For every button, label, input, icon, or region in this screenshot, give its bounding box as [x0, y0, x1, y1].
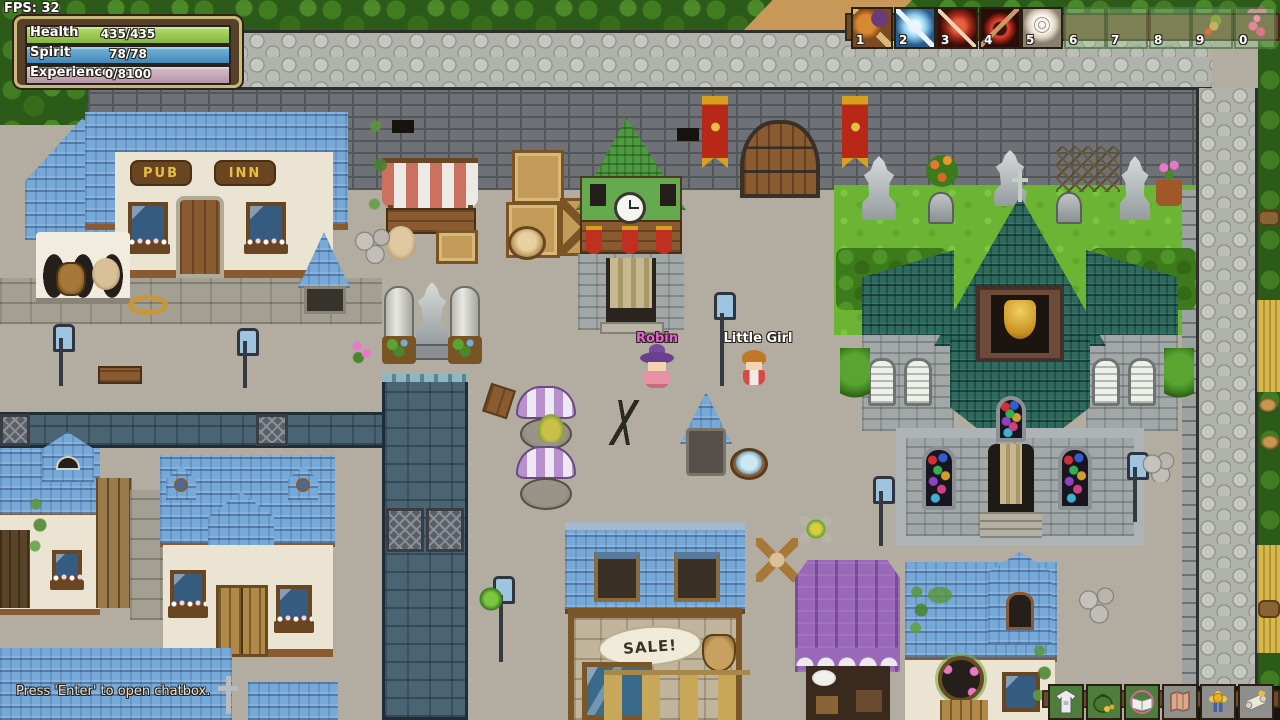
- little-girl-dress: [743, 370, 765, 385]
- quests-button[interactable]: [1238, 684, 1274, 720]
- wheat-field-2: [1257, 545, 1280, 653]
- tombstone-1: [928, 192, 954, 224]
- tombstone-2: [1056, 192, 1082, 224]
- quests-icon: [1243, 689, 1269, 715]
- shed-banner-1: [586, 226, 602, 256]
- rope-coil: [128, 295, 168, 315]
- hotbar-key-3: 3: [941, 33, 949, 47]
- wall-vent-2: [677, 128, 699, 141]
- church-window-r1: [1092, 358, 1120, 406]
- vine-trellis: [1056, 146, 1120, 192]
- hotbar-key-1: 1: [856, 33, 864, 47]
- map-icon: [1167, 689, 1193, 715]
- lamppost-4: [874, 476, 888, 546]
- church-window-r2: [1128, 358, 1156, 406]
- hotbar-slot-3[interactable]: 3: [936, 7, 978, 49]
- pub-flowerbox-right: [244, 244, 288, 254]
- wall-banner-right: [842, 96, 868, 168]
- hotbar-slot-7[interactable]: 7: [1106, 7, 1148, 49]
- player-robin[interactable]: [640, 344, 674, 390]
- game-viewport: PUB INN: [0, 0, 1280, 720]
- shop-fence: [604, 670, 750, 720]
- robin-dress: [644, 371, 670, 388]
- spiral-bush: [478, 586, 504, 612]
- inventory-icon: [1091, 689, 1117, 715]
- hotbar-key-5: 5: [1026, 33, 1034, 47]
- stained-glass-right: [1058, 446, 1092, 510]
- spellbook-button[interactable]: [1124, 684, 1160, 720]
- hotbar: 1 2 3 4 5 6 7 8 9 0: [0, 0, 1280, 50]
- shop-dormer-1: [594, 552, 640, 602]
- wall-vent-1: [392, 120, 414, 133]
- church-cross: [1012, 170, 1028, 202]
- church-steps: [980, 512, 1042, 538]
- pub-sign: PUB: [130, 160, 192, 186]
- canal-grate-3: [0, 414, 30, 446]
- house-a-flowerbox: [50, 580, 84, 590]
- canal-grate-2: [426, 508, 464, 552]
- house-b-flowerbox-1: [168, 606, 208, 618]
- equipment-icon: [1053, 689, 1079, 715]
- tent-cat: [812, 670, 836, 686]
- robin-name-label: Robin: [622, 331, 692, 346]
- hotbar-slot-1[interactable]: 1: [851, 7, 893, 49]
- well-base[interactable]: [686, 428, 726, 476]
- shop-beam: [568, 608, 742, 618]
- town-wall-right: [1196, 88, 1258, 720]
- hotbar-key-4: 4: [984, 33, 992, 47]
- church-tree-left: [840, 348, 870, 404]
- little-girl-name-label: Little Girl: [718, 331, 798, 346]
- experience-value: 0/8100: [27, 67, 229, 82]
- house-a-door[interactable]: [0, 530, 30, 608]
- cottage-door[interactable]: [940, 700, 988, 720]
- canal-grate-1: [386, 508, 424, 552]
- church-tree-right: [1164, 348, 1194, 404]
- tent-scallop-trim: [795, 648, 900, 666]
- clay-jug: [92, 258, 120, 290]
- stained-glass-center: [996, 396, 1026, 442]
- npc-little-girl[interactable]: [740, 350, 768, 392]
- hotbar-key-7: 7: [1111, 33, 1119, 47]
- flower-stone-patch: [798, 510, 834, 548]
- achievements-button[interactable]: [1200, 684, 1236, 720]
- hotbar-slot-8[interactable]: 8: [1149, 7, 1191, 49]
- planter-left: [382, 336, 416, 364]
- market-awning: [382, 158, 478, 208]
- pub-well: [304, 286, 346, 314]
- rubble-pile-2: [1076, 584, 1118, 624]
- tulip-pot: [1156, 158, 1182, 206]
- parasol-table-2: [516, 446, 572, 510]
- barrel: [56, 262, 86, 296]
- crate-stack-top: [512, 150, 564, 204]
- wall-vine-1: [366, 100, 390, 230]
- shed-curtain: [610, 258, 652, 308]
- sale-banner-text: SALE!: [622, 636, 677, 658]
- hotbar-key-9: 9: [1196, 33, 1204, 47]
- cottage-wreath-window: [938, 656, 984, 702]
- canal-grate-4: [256, 414, 288, 446]
- church-window-l2: [904, 358, 932, 406]
- inn-sign-text: INN: [229, 166, 262, 181]
- hotbar-slot-2[interactable]: 2: [894, 7, 936, 49]
- house-b-door[interactable]: [216, 585, 268, 657]
- hotbar-slot-9[interactable]: 9: [1191, 7, 1233, 49]
- house-b-dormer-window-2: [296, 478, 310, 492]
- log-2: [1258, 600, 1280, 618]
- shed-banner-2: [622, 226, 638, 256]
- tree-stump-2: [1261, 435, 1279, 449]
- lamppost-5: [1128, 452, 1142, 522]
- church-bell-tower: [976, 286, 1064, 362]
- rubble-pile-1: [352, 226, 394, 264]
- church-curtain: [1000, 444, 1022, 504]
- flowers-pink: [348, 338, 374, 366]
- canal-rim: [382, 374, 468, 382]
- map-button[interactable]: [1162, 684, 1198, 720]
- wooden-pinwheel: [756, 538, 798, 582]
- experience-bar: Experience 0/8100: [25, 65, 231, 85]
- hotbar-slot-5[interactable]: 5: [1021, 7, 1063, 49]
- lamppost-1: [54, 324, 68, 386]
- town-gate-door[interactable]: [740, 120, 820, 198]
- inn-sign: INN: [214, 160, 276, 186]
- cottage-dormer-window: [1006, 592, 1034, 630]
- lower-roof-2: [248, 682, 338, 720]
- shed-clock: [614, 192, 646, 224]
- pub-door[interactable]: [176, 196, 224, 278]
- wooden-bucket: [508, 226, 546, 260]
- broken-planks: [482, 383, 516, 420]
- washing-tub: [730, 448, 768, 480]
- house-b-flowerbox-2: [274, 621, 314, 633]
- shed-banner-3: [656, 226, 672, 256]
- wall-banner-left: [702, 96, 728, 168]
- market-crate: [436, 230, 478, 264]
- hotbar-slot-4[interactable]: 4: [979, 7, 1021, 49]
- flower-bush-orange: [924, 150, 960, 192]
- dead-thorn: [604, 400, 644, 445]
- lamppost-2: [238, 328, 252, 388]
- house-a-vine: [28, 490, 48, 560]
- bench: [98, 366, 142, 384]
- hotbar-key-8: 8: [1154, 33, 1162, 47]
- chat-hint: Press 'Enter' to open chatbox.: [16, 684, 210, 699]
- rubble-pile-3: [1142, 452, 1176, 482]
- shop-dormer-2: [674, 552, 720, 602]
- spellbook-icon: [1129, 689, 1155, 715]
- wheat-field-1: [1257, 300, 1280, 392]
- memorial-statue: [414, 282, 450, 346]
- log-1: [1258, 210, 1280, 226]
- cottage-vine-2: [908, 580, 930, 640]
- hotbar-key-0: 0: [1239, 33, 1247, 47]
- hotbar-slot-6[interactable]: 6: [1064, 7, 1106, 49]
- equipment-button[interactable]: [1048, 684, 1084, 720]
- house-gate-planks[interactable]: [96, 478, 132, 608]
- house-b-dormer-window-1: [174, 478, 188, 492]
- hotbar-slot-0[interactable]: 0: [1234, 7, 1276, 49]
- planter-right: [448, 336, 482, 364]
- chapel-cross-finial: [218, 676, 238, 714]
- inventory-button[interactable]: [1086, 684, 1122, 720]
- grass-tuft: [536, 412, 566, 442]
- hotbar-key-6: 6: [1069, 33, 1077, 47]
- pub-sign-text: PUB: [143, 166, 179, 181]
- hotbar-key-2: 2: [899, 33, 907, 47]
- coin-purse-sign: [702, 634, 736, 672]
- pub-flowerbox-left: [126, 244, 170, 254]
- achievements-icon: [1205, 689, 1231, 715]
- stained-glass-left: [922, 446, 956, 510]
- tree-stump-1: [1259, 398, 1277, 412]
- church-window-l1: [868, 358, 896, 406]
